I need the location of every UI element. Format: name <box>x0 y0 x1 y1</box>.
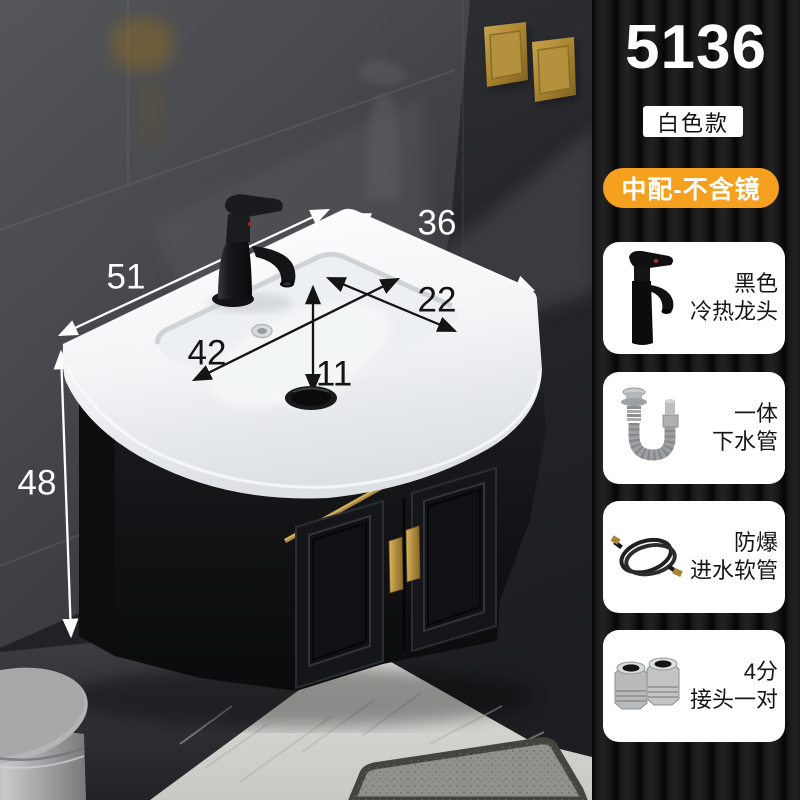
cabinet-door-right <box>412 468 496 651</box>
accessory-line2: 下水管 <box>683 428 778 456</box>
product-info-panel: 5136 白色款 中配-不含镜 黑色 冷热龙头 <box>592 0 800 800</box>
dimension-label-basin-width: 42 <box>188 336 227 371</box>
dimension-label-top-width: 51 <box>107 260 146 295</box>
hot-cold-indicator <box>248 222 252 226</box>
door-handle-left <box>389 537 403 593</box>
accessory-card-inlet-hose: 防爆 进水软管 <box>603 501 785 613</box>
accessory-line2: 进水软管 <box>683 557 778 585</box>
product-code: 5136 <box>592 12 800 83</box>
product-detail-image: 51 36 42 22 11 48 5136 白色款 中配-不含镜 黑色 冷热 <box>0 0 800 800</box>
config-badge: 中配-不含镜 <box>603 168 779 208</box>
accessory-card-faucet: 黑色 冷热龙头 <box>603 242 785 354</box>
cabinet-door-left <box>296 501 383 688</box>
accessory-line2: 接头一对 <box>683 686 778 714</box>
gold-reflection-tail <box>140 78 164 146</box>
faucet-icon <box>611 249 683 347</box>
gold-reflection <box>110 17 174 71</box>
door-handle-right <box>406 526 420 582</box>
variant-badge: 白色款 <box>643 106 743 137</box>
accessory-line1: 4分 <box>683 658 778 686</box>
accessory-line1: 一体 <box>683 400 778 428</box>
accessory-line2: 冷热龙头 <box>683 298 778 326</box>
accessory-card-fittings: 4分 接头一对 <box>603 630 785 742</box>
accessory-label: 4分 接头一对 <box>683 658 778 714</box>
dimension-label-drain-offset: 11 <box>316 357 352 392</box>
accessory-label: 一体 下水管 <box>683 400 778 456</box>
inlet-hose-icon <box>611 524 683 590</box>
dimension-label-basin-depth: 22 <box>418 283 457 318</box>
overflow-hole <box>252 325 272 338</box>
fitting-pair-icon <box>611 655 683 717</box>
accessory-line1: 黑色 <box>683 270 778 298</box>
drain-pipe-icon <box>611 385 683 471</box>
dimension-label-cabinet-height: 48 <box>18 466 57 501</box>
accessory-card-drain-pipe: 一体 下水管 <box>603 372 785 484</box>
dimension-label-top-depth: 36 <box>418 206 457 241</box>
accessory-label: 黑色 冷热龙头 <box>683 270 778 326</box>
accessory-label: 防爆 进水软管 <box>683 529 778 585</box>
accessory-line1: 防爆 <box>683 529 778 557</box>
